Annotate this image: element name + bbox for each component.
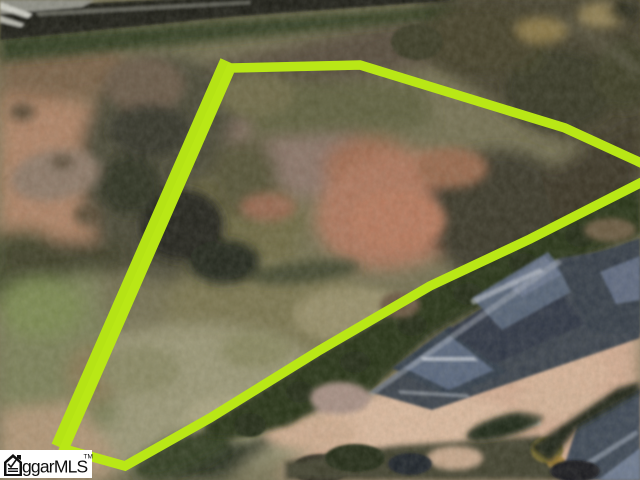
svg-text:ggarMLS: ggarMLS [22,457,88,477]
svg-text:TM: TM [84,454,93,461]
